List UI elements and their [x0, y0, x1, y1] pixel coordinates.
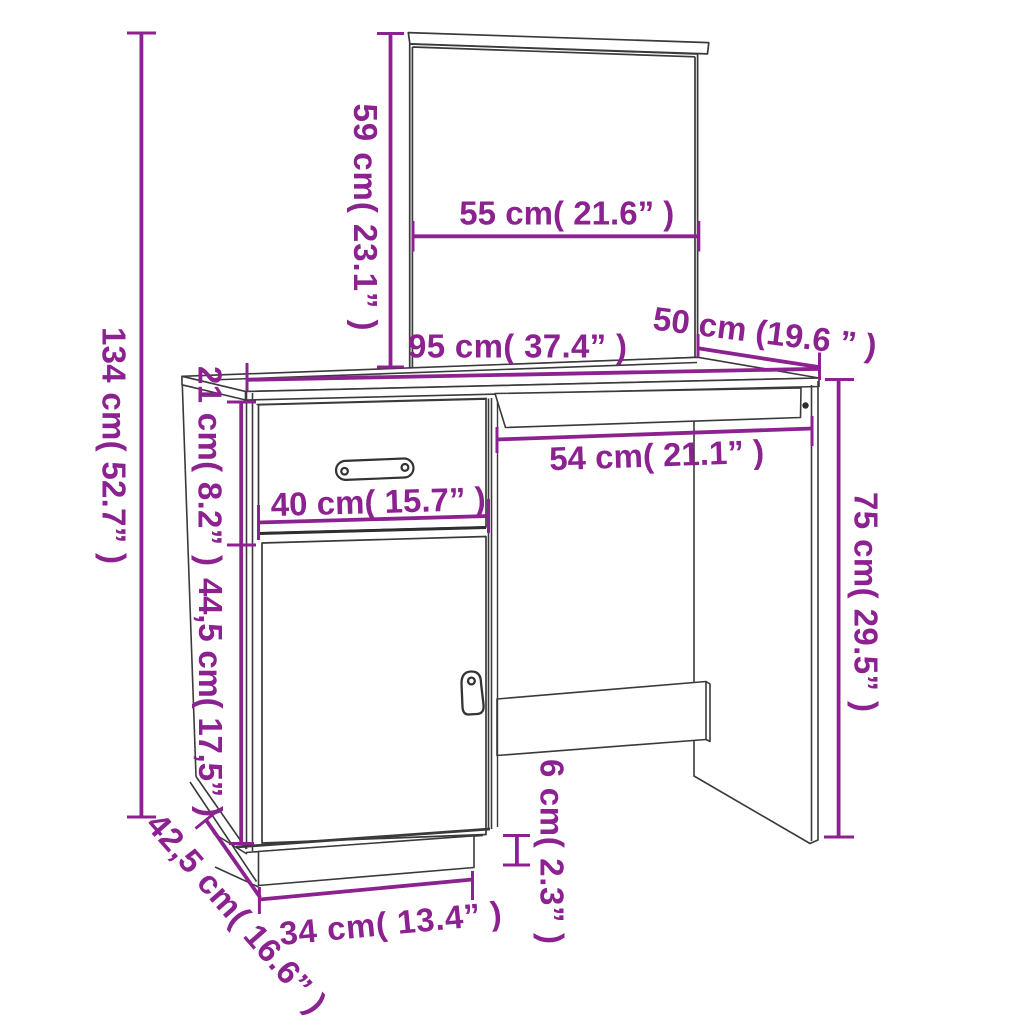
svg-text:75 cm( 29.5” ): 75 cm( 29.5” )	[848, 492, 885, 712]
svg-text:6 cm( 2.3” ): 6 cm( 2.3” )	[534, 759, 571, 944]
svg-text:59 cm( 23.1” ): 59 cm( 23.1” )	[347, 104, 384, 331]
svg-text:55 cm( 21.6” ): 55 cm( 21.6” )	[459, 195, 674, 232]
svg-text:134 cm( 52.7” ): 134 cm( 52.7” )	[96, 327, 133, 564]
svg-text:44,5 cm( 17,5” ): 44,5 cm( 17,5” )	[192, 578, 229, 817]
svg-text:54 cm( 21.1” ): 54 cm( 21.1” )	[549, 433, 765, 477]
svg-text:40 cm( 15.7” ): 40 cm( 15.7” )	[270, 480, 486, 523]
svg-text:21 cm( 8.2” ): 21 cm( 8.2” )	[192, 366, 229, 566]
svg-text:95 cm( 37.4” ): 95 cm( 37.4” )	[408, 328, 627, 365]
